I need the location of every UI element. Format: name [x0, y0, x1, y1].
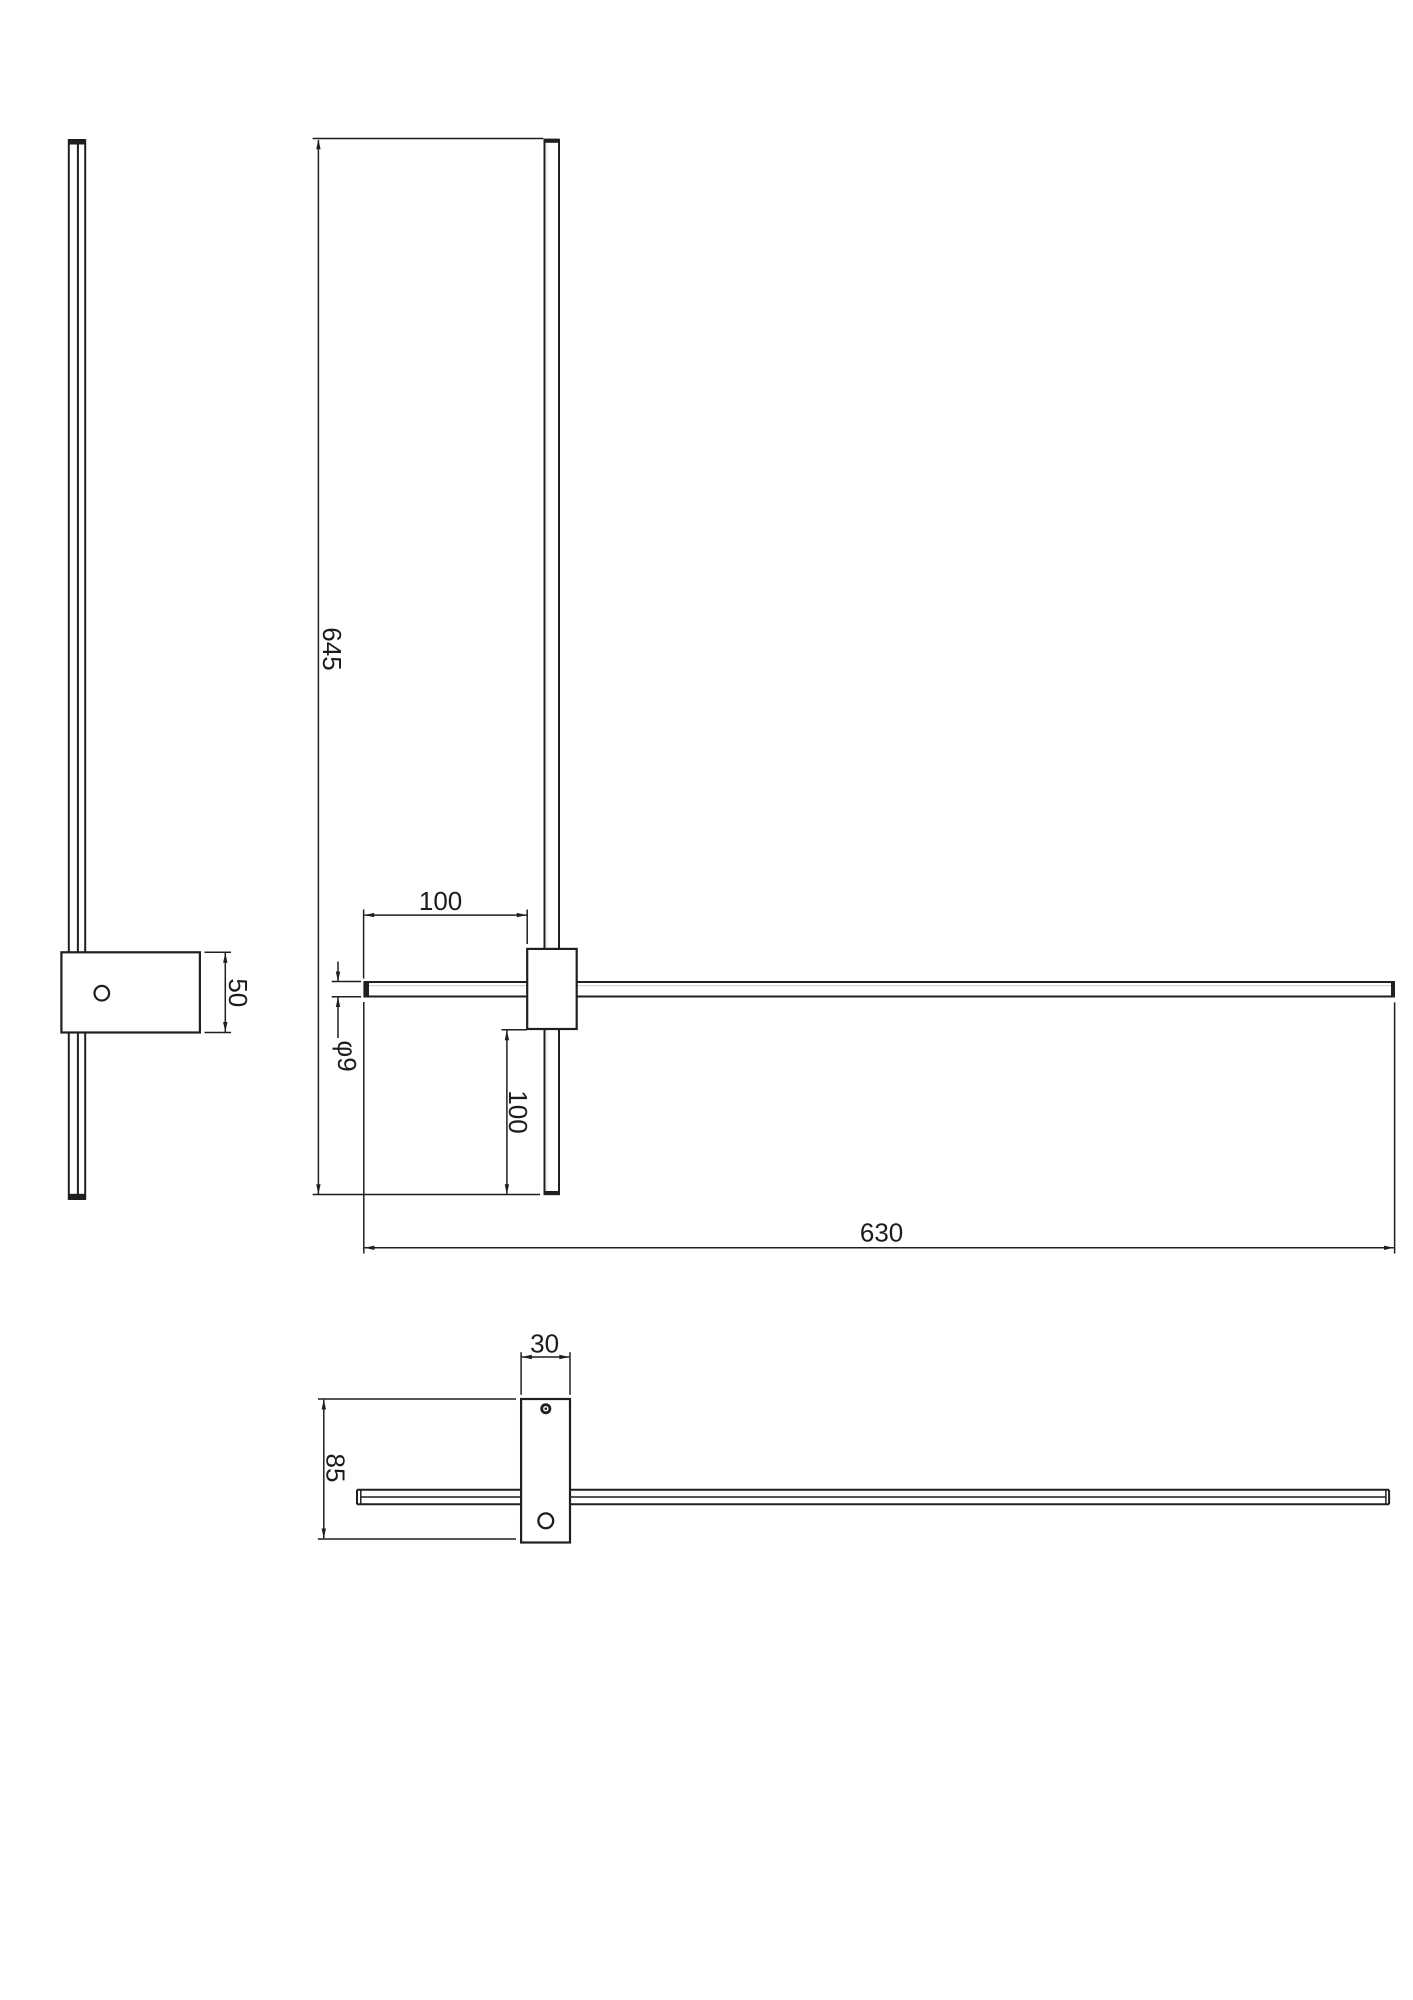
svg-text:50: 50 — [223, 978, 253, 1007]
svg-text:φ9: φ9 — [332, 1040, 362, 1071]
svg-text:630: 630 — [860, 1218, 903, 1248]
svg-text:100: 100 — [503, 1090, 533, 1133]
svg-text:30: 30 — [530, 1329, 559, 1359]
svg-text:85: 85 — [320, 1454, 350, 1483]
svg-text:100: 100 — [419, 886, 462, 916]
svg-text:645: 645 — [317, 627, 347, 670]
